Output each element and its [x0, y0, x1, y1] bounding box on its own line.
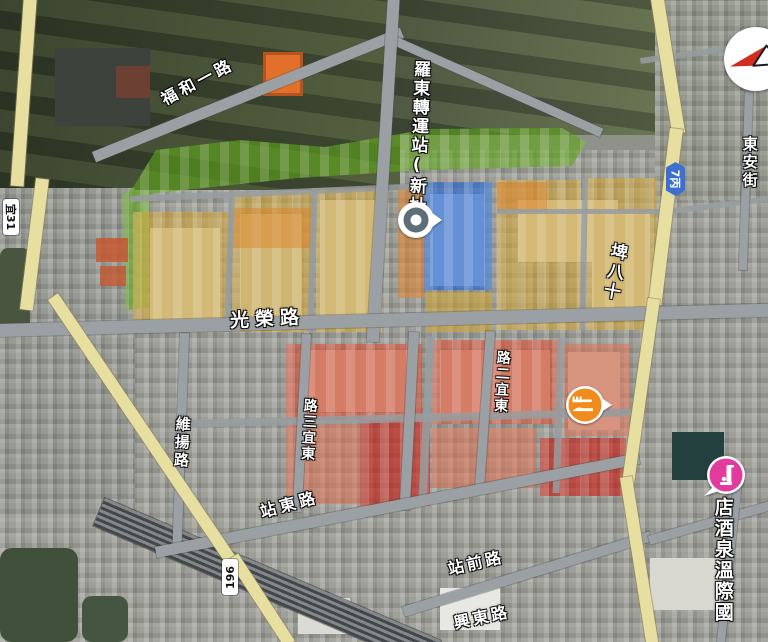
- street-label-weiyang: 維揚路: [171, 416, 193, 471]
- orange-roofs-west: [100, 266, 126, 286]
- factory-roof-red: [116, 66, 150, 98]
- map-canvas[interactable]: 宜31 7丙 196 福和一路 東安街 埤八十 光榮路 維揚路 路三宜東 路二宜…: [0, 0, 768, 642]
- street-label-guangrong: 光榮路: [229, 306, 305, 334]
- street-label-dongyi-2: 路二宜東: [490, 350, 511, 415]
- road-minor-y212: [497, 209, 660, 214]
- hotel-bed-icon[interactable]: [702, 456, 748, 498]
- zone-orange-2b: [232, 208, 312, 248]
- satellite-trees-south: [82, 596, 128, 642]
- transit-location-marker[interactable]: [396, 200, 444, 240]
- satellite-trees-southwest: [0, 548, 78, 642]
- zone-yellow-1: [133, 212, 229, 330]
- route-shield-yi31: 宜31: [3, 199, 19, 235]
- poi-label-hotel-name: 店酒泉溫際國: [710, 497, 734, 623]
- compass-needle-icon: [724, 27, 768, 91]
- compass-button[interactable]: [724, 27, 768, 91]
- restaurant-icon[interactable]: [566, 386, 614, 424]
- route-shield-196: 196: [222, 559, 238, 595]
- street-label-dongan: 東安街: [740, 136, 759, 190]
- route-shield-7bing: 7丙: [666, 162, 685, 196]
- satellite-fields-north: [390, 0, 675, 135]
- orange-roofs-west: [96, 238, 128, 262]
- zone-orange-5b: [497, 182, 547, 212]
- street-label-dongyi-3: 路三宜東: [297, 398, 318, 463]
